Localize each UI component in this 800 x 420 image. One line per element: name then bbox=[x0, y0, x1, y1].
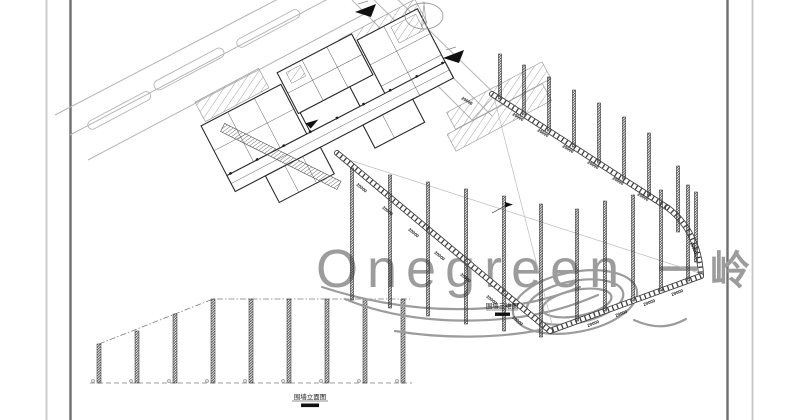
road-median bbox=[86, 90, 152, 131]
wall-face bbox=[492, 94, 668, 208]
fence-pole bbox=[603, 201, 606, 311]
fence-pole bbox=[522, 65, 525, 115]
elevation-pole bbox=[173, 314, 177, 383]
base-mark bbox=[396, 380, 399, 383]
base-mark bbox=[282, 380, 285, 383]
fence-pole bbox=[539, 204, 542, 337]
base-mark bbox=[92, 380, 95, 383]
fence-pole bbox=[350, 168, 353, 300]
base-mark bbox=[206, 380, 209, 383]
base-mark bbox=[320, 380, 323, 383]
base-mark bbox=[168, 380, 171, 383]
fence-pole bbox=[502, 196, 505, 331]
fence-wall-top bbox=[492, 94, 668, 208]
dim-label: 20000 bbox=[407, 227, 420, 239]
axon-title: 围墙三维图 bbox=[486, 301, 519, 310]
base-mark bbox=[130, 380, 133, 383]
dim-label: 20000 bbox=[381, 205, 394, 217]
fence-pole bbox=[676, 166, 679, 232]
fence-pole bbox=[686, 185, 689, 281]
elevation-pole bbox=[135, 331, 139, 383]
fence-pole bbox=[464, 189, 467, 324]
title-scale-bar bbox=[301, 404, 319, 408]
fence-pole bbox=[498, 54, 501, 99]
road-median bbox=[152, 46, 226, 91]
fence-pole bbox=[388, 175, 391, 308]
dim-label: 20000 bbox=[355, 182, 368, 194]
fence-pole bbox=[631, 195, 634, 301]
arrow-annotation-mark bbox=[358, 1, 368, 4]
watermark-swoosh-tail bbox=[634, 319, 686, 326]
base-mark bbox=[358, 380, 361, 383]
fence-pole bbox=[647, 133, 650, 196]
elevation-pole bbox=[249, 299, 253, 383]
elevation-title: 围墙立面图 bbox=[294, 392, 327, 401]
base-mark bbox=[244, 380, 247, 383]
elevation-pole bbox=[211, 299, 215, 383]
elevation-pole bbox=[325, 299, 329, 383]
elevation-pole bbox=[401, 299, 405, 383]
elevation-pole bbox=[287, 299, 291, 383]
fence-pole bbox=[426, 182, 429, 316]
title-scale-bar bbox=[495, 313, 510, 316]
fence-pole bbox=[622, 117, 625, 179]
watermark-swoosh bbox=[395, 330, 540, 337]
flag-head bbox=[505, 202, 513, 208]
fence-pole bbox=[659, 190, 662, 291]
road-line bbox=[55, 0, 330, 115]
fence-pole bbox=[572, 90, 575, 147]
elevation-pole bbox=[363, 299, 367, 383]
fence-pole bbox=[547, 77, 550, 131]
cad-canvas: 围墙立面图 Onegreen 一岭 bbox=[0, 0, 800, 420]
fence-pole bbox=[597, 103, 600, 163]
fence-pole bbox=[575, 209, 578, 321]
fence-elevation-drawing: 围墙立面图 bbox=[90, 299, 412, 407]
elevation-pole bbox=[97, 344, 101, 383]
north-letter: N bbox=[423, 0, 426, 5]
